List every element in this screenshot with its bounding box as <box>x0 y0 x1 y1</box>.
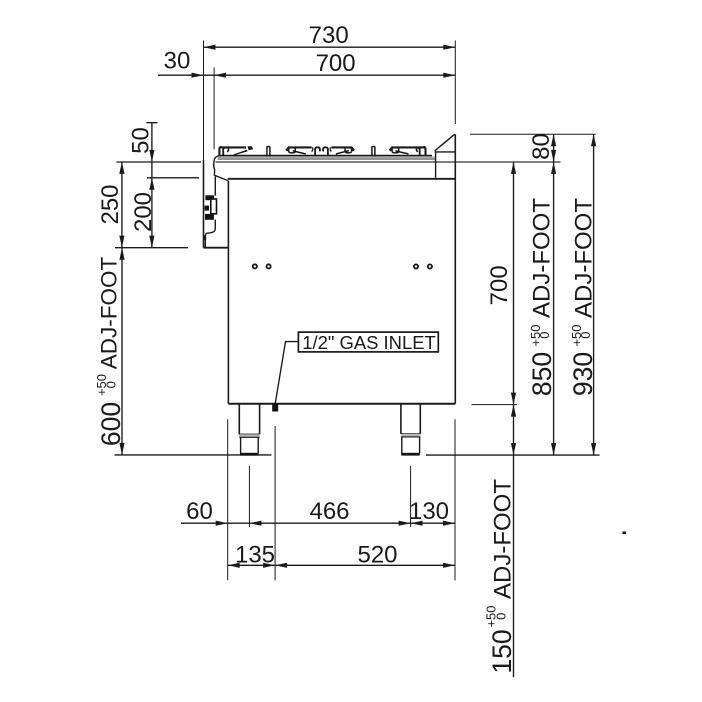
svg-text:130: 130 <box>409 498 449 525</box>
svg-text:80: 80 <box>528 133 555 160</box>
svg-text:730: 730 <box>309 22 349 49</box>
svg-text:0: 0 <box>494 613 509 620</box>
svg-text:250: 250 <box>97 184 124 224</box>
svg-text:150: 150 <box>487 629 517 673</box>
svg-text:30: 30 <box>164 48 191 75</box>
svg-text:930: 930 <box>568 352 598 396</box>
svg-text:0: 0 <box>104 381 119 388</box>
svg-text:0: 0 <box>578 332 593 339</box>
svg-text:850: 850 <box>527 352 557 396</box>
svg-text:466: 466 <box>309 498 349 525</box>
svg-text:ADJ-FOOT: ADJ-FOOT <box>97 257 122 370</box>
svg-text:60: 60 <box>186 498 213 525</box>
svg-text:ADJ-FOOT: ADJ-FOOT <box>489 479 516 599</box>
svg-text:ADJ-FOOT: ADJ-FOOT <box>529 198 556 318</box>
svg-text:0: 0 <box>537 332 552 339</box>
svg-text:600: 600 <box>96 402 126 446</box>
svg-text:700: 700 <box>486 265 513 305</box>
svg-text:200: 200 <box>130 192 157 232</box>
svg-text:520: 520 <box>357 541 397 568</box>
svg-text:50: 50 <box>127 127 154 154</box>
svg-text:700: 700 <box>316 50 356 77</box>
svg-text:1/2" GAS INLET: 1/2" GAS INLET <box>302 332 436 353</box>
svg-text:ADJ-FOOT: ADJ-FOOT <box>571 198 598 318</box>
svg-text:135: 135 <box>235 541 275 568</box>
